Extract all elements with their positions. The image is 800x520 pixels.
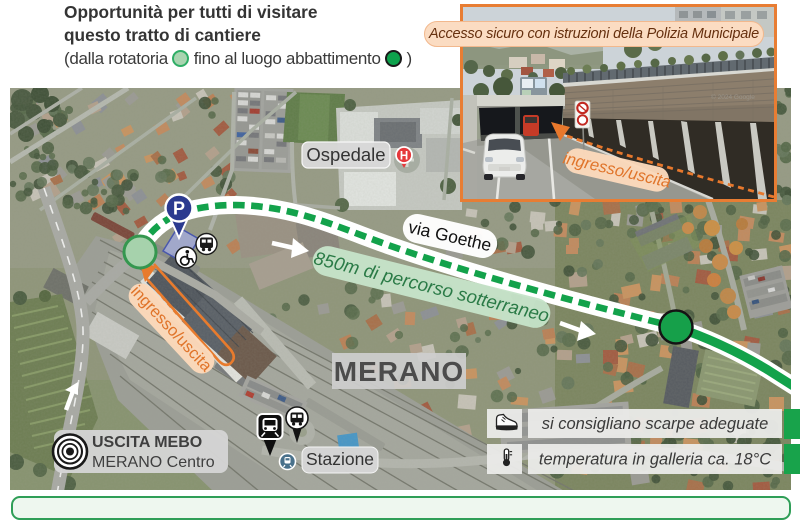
svg-text:P: P [173,199,185,219]
svg-text:temperatura in galleria ca. 18: temperatura in galleria ca. 18°C [539,451,771,469]
svg-text:si consigliano scarpe adeguate: si consigliano scarpe adeguate [542,415,769,433]
svg-text:Ospedale: Ospedale [306,144,385,165]
svg-text:MERANO Centro: MERANO Centro [92,454,215,471]
svg-text:MERANO: MERANO [334,356,464,387]
svg-text:USCITA MEBO: USCITA MEBO [92,434,202,451]
svg-text:© 2024 Google: © 2024 Google [711,93,755,101]
svg-text:H: H [400,151,408,163]
svg-text:Stazione: Stazione [306,449,374,469]
